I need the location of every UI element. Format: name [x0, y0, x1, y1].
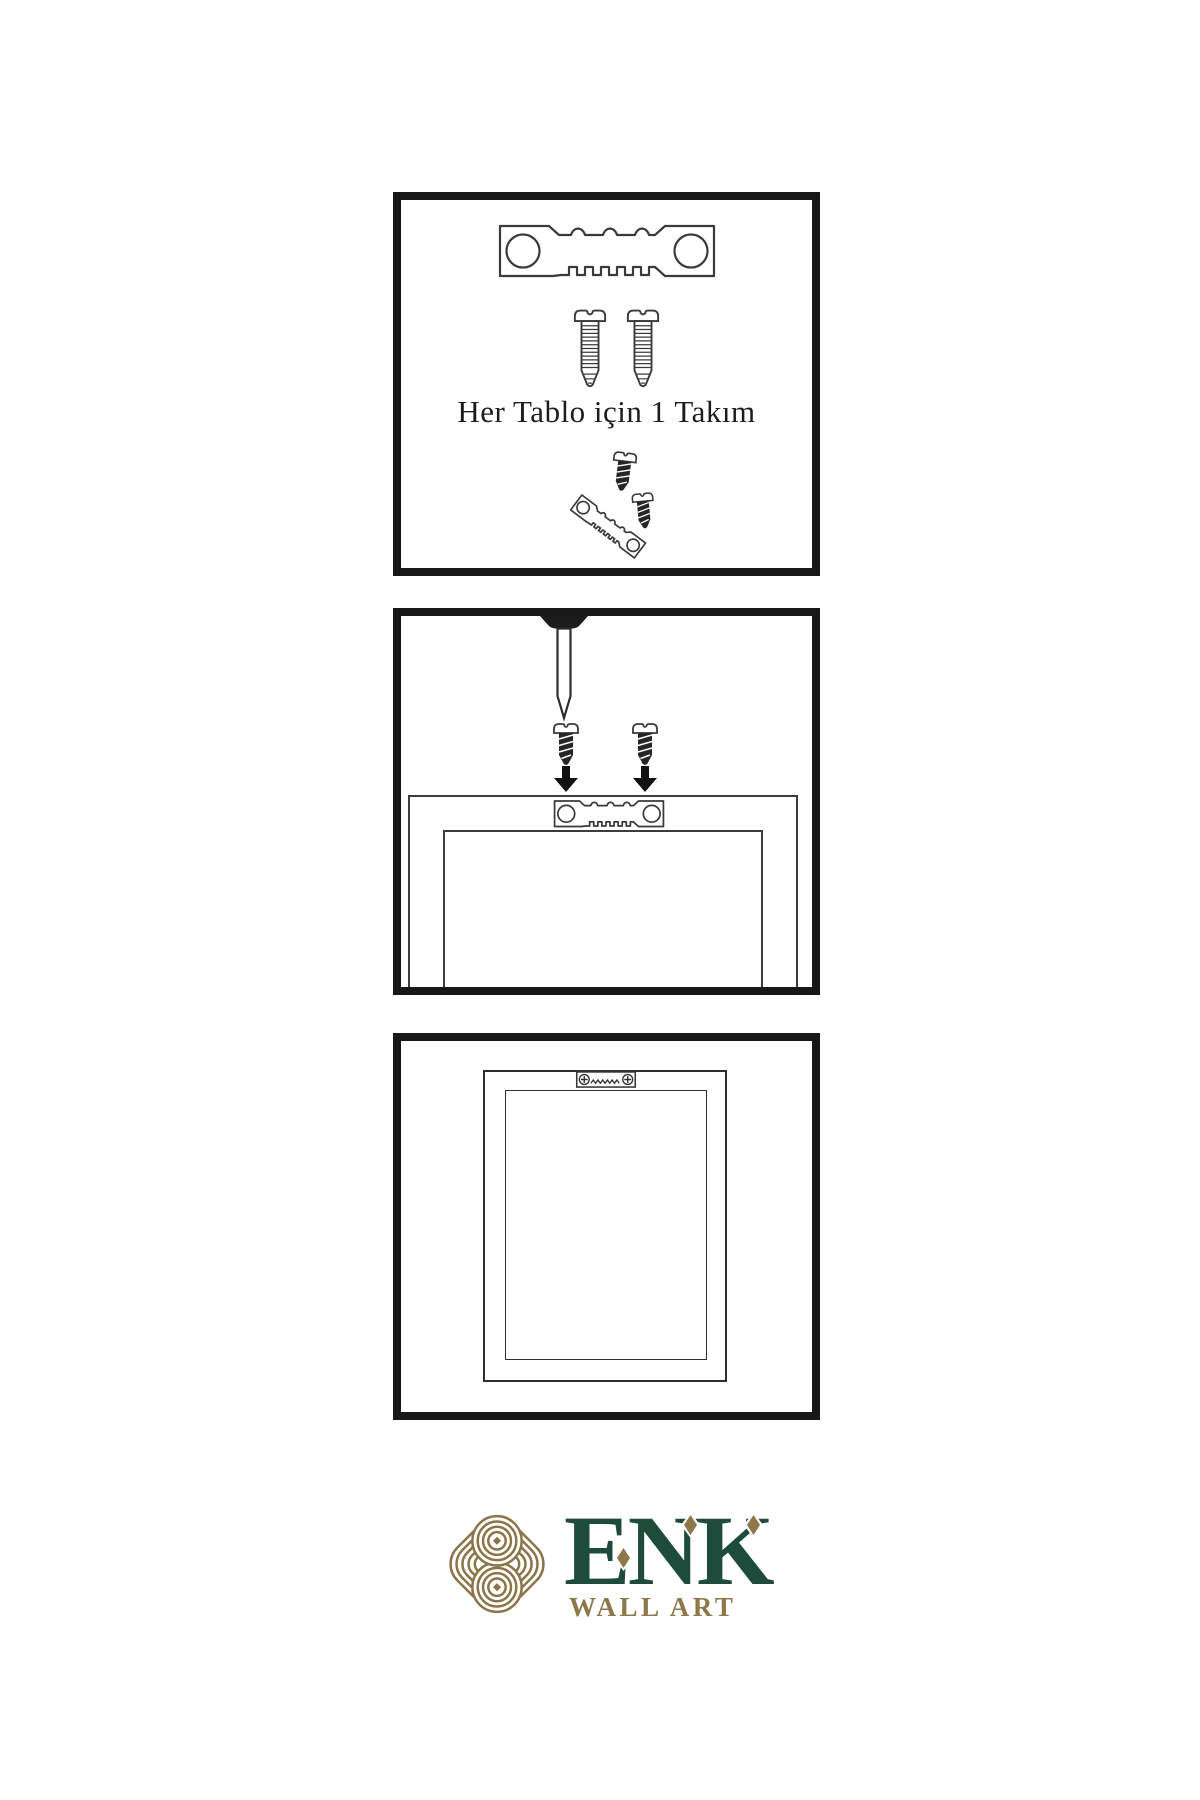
screw-icon [625, 306, 661, 391]
dark-screw-icon [631, 722, 659, 768]
dark-screw-icon [630, 491, 657, 532]
sawtooth-hanger-icon [497, 222, 717, 280]
down-arrow-icon [554, 766, 578, 792]
dark-screw-icon [552, 722, 580, 768]
mounted-sawtooth-hanger-icon [575, 1071, 637, 1088]
screw-icon [572, 306, 608, 391]
sawtooth-hanger-icon [553, 799, 665, 829]
panel-hardware-kit: Her Tablo için 1 Takım [393, 192, 820, 576]
frame-back-inner-edge [505, 1090, 707, 1360]
kit-caption: Her Tablo için 1 Takım [401, 394, 812, 430]
down-arrow-icon [633, 766, 657, 792]
panel-mounted-result [393, 1033, 820, 1420]
brand-wordmark: ENK [564, 1501, 772, 1601]
wall-nail-icon [540, 616, 588, 722]
celtic-knot-icon [440, 1500, 554, 1628]
dark-screw-icon [608, 449, 639, 495]
panel-installation-step [393, 608, 820, 995]
frame-back-inner-edge [443, 830, 763, 995]
brand-subtitle: WALL ART [569, 1593, 736, 1623]
instruction-sheet: Her Tablo için 1 Takım [0, 0, 1200, 1800]
